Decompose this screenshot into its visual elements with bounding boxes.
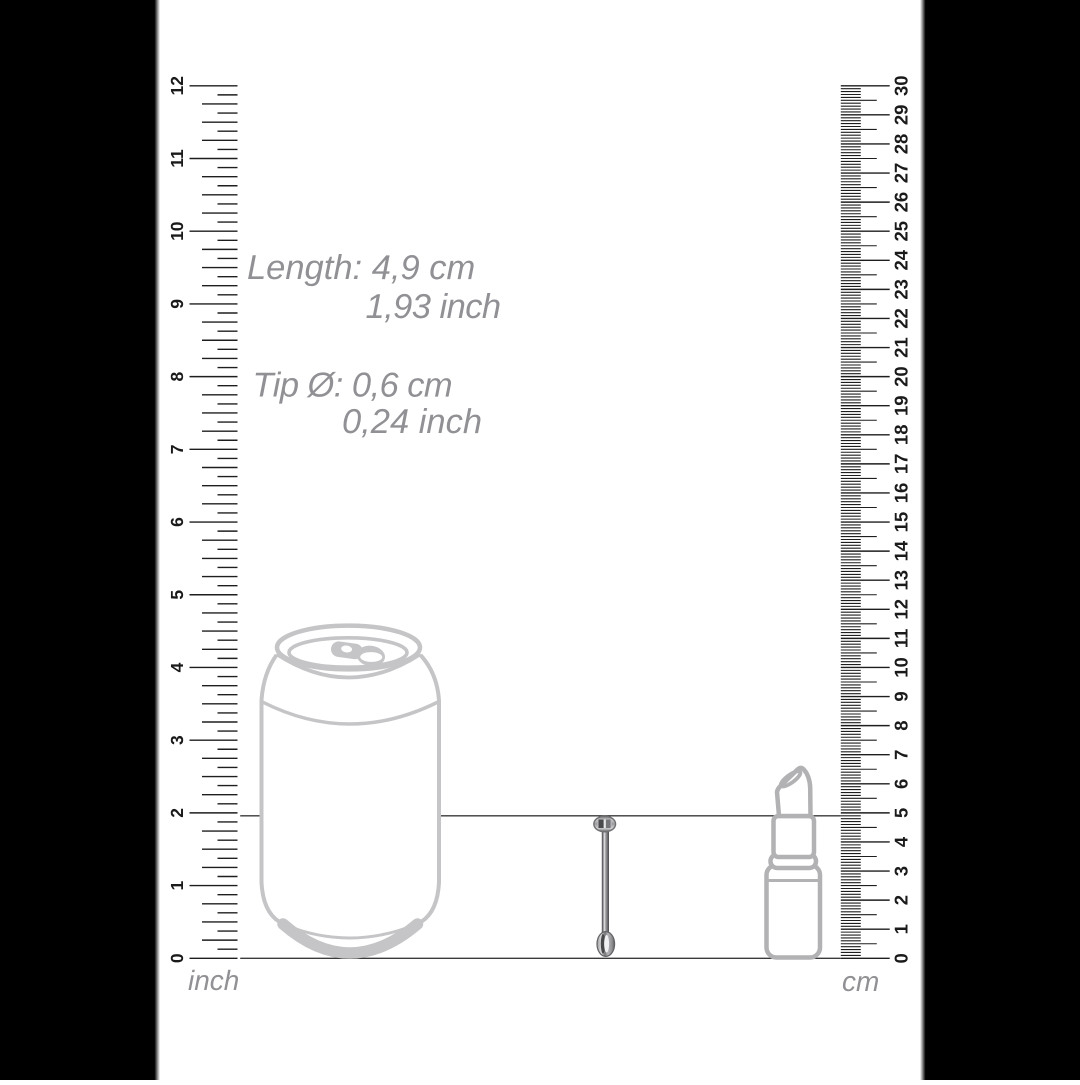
svg-text:cm: cm bbox=[842, 966, 879, 997]
svg-text:18: 18 bbox=[890, 424, 911, 445]
svg-text:4: 4 bbox=[167, 662, 187, 672]
svg-text:5: 5 bbox=[167, 590, 187, 600]
svg-text:12: 12 bbox=[167, 76, 187, 96]
svg-text:29: 29 bbox=[890, 105, 911, 126]
svg-text:26: 26 bbox=[890, 192, 911, 213]
svg-text:3: 3 bbox=[167, 735, 187, 745]
svg-text:15: 15 bbox=[890, 512, 911, 533]
svg-text:22: 22 bbox=[890, 308, 911, 329]
svg-text:17: 17 bbox=[890, 454, 911, 475]
svg-text:1: 1 bbox=[890, 924, 911, 934]
svg-text:2: 2 bbox=[167, 808, 187, 818]
svg-text:6: 6 bbox=[890, 779, 911, 789]
svg-text:5: 5 bbox=[890, 808, 911, 818]
svg-text:0: 0 bbox=[890, 953, 911, 963]
svg-text:10: 10 bbox=[890, 657, 911, 678]
svg-text:1: 1 bbox=[167, 880, 187, 890]
svg-text:inch: inch bbox=[188, 965, 239, 996]
svg-text:20: 20 bbox=[890, 366, 911, 387]
svg-text:16: 16 bbox=[890, 483, 911, 504]
svg-text:6: 6 bbox=[167, 517, 187, 527]
svg-text:Tip Ø: 0,6 cm: Tip Ø: 0,6 cm bbox=[252, 367, 452, 405]
svg-text:19: 19 bbox=[890, 395, 911, 416]
svg-text:3: 3 bbox=[890, 866, 911, 876]
svg-text:11: 11 bbox=[890, 629, 911, 649]
svg-text:0,24 inch: 0,24 inch bbox=[342, 403, 482, 441]
svg-text:7: 7 bbox=[167, 444, 187, 454]
svg-text:13: 13 bbox=[890, 570, 911, 591]
svg-text:1,93 inch: 1,93 inch bbox=[365, 288, 500, 326]
svg-text:2: 2 bbox=[890, 895, 911, 905]
svg-text:25: 25 bbox=[890, 221, 911, 242]
svg-text:11: 11 bbox=[167, 149, 187, 168]
svg-text:8: 8 bbox=[890, 720, 911, 730]
svg-text:28: 28 bbox=[890, 134, 911, 155]
svg-text:9: 9 bbox=[167, 299, 187, 309]
svg-text:8: 8 bbox=[167, 371, 187, 381]
svg-text:14: 14 bbox=[890, 540, 911, 561]
svg-text:4: 4 bbox=[890, 836, 911, 847]
svg-text:27: 27 bbox=[890, 163, 911, 184]
svg-text:0: 0 bbox=[167, 953, 187, 963]
svg-text:21: 21 bbox=[890, 337, 911, 358]
svg-text:30: 30 bbox=[890, 75, 911, 96]
svg-text:24: 24 bbox=[890, 249, 911, 270]
svg-text:7: 7 bbox=[890, 750, 911, 760]
svg-text:Length: 4,9 cm: Length: 4,9 cm bbox=[247, 249, 475, 287]
svg-text:10: 10 bbox=[167, 221, 187, 241]
svg-text:23: 23 bbox=[890, 279, 911, 300]
svg-text:12: 12 bbox=[890, 599, 911, 620]
svg-text:9: 9 bbox=[890, 691, 911, 701]
